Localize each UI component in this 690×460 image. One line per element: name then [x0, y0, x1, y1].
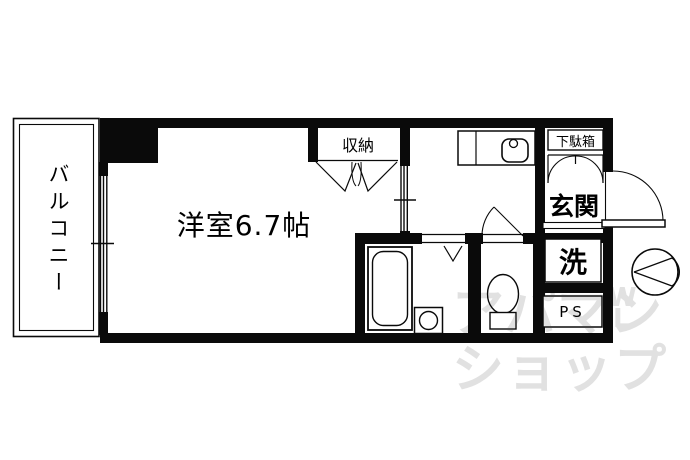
drain-pan-icon	[415, 308, 443, 334]
wall-top-left-block	[100, 118, 158, 163]
entrance-label: 玄関	[544, 189, 604, 221]
faucet-icon	[510, 140, 518, 148]
wall-bath-left	[355, 244, 365, 333]
wall-bath-top-mid	[465, 233, 483, 244]
wall-bottom	[100, 333, 613, 343]
compass-icon	[632, 249, 679, 295]
wall-right-upper	[603, 118, 613, 172]
wall-right-lower	[603, 220, 613, 343]
floor-plan: バルコニー 洋室6.7帖 収納 下駄箱 玄関 洗 PS アパマン ショップ W …	[0, 0, 690, 460]
wall-left-lower	[99, 312, 108, 335]
sliding-door-icon	[394, 166, 416, 231]
entrance-step	[543, 223, 605, 229]
shoe-cabinet-label: 下駄箱	[548, 130, 603, 150]
wall-left-upper	[99, 162, 108, 176]
main-room-label: 洋室6.7帖	[128, 206, 360, 242]
kitchen-counter	[458, 131, 535, 165]
closet-bifold-door-icon	[316, 161, 398, 192]
toilet-icon	[488, 275, 519, 330]
balcony-window-icon	[91, 176, 114, 312]
wall-laundry-ps	[535, 283, 613, 293]
wall-top	[100, 118, 613, 128]
closet-label: 収納	[316, 131, 400, 157]
pipe-space-label: PS	[543, 300, 602, 324]
entrance-door-icon	[602, 171, 665, 227]
bath-folding-door-icon	[444, 246, 462, 261]
bathtub-icon	[368, 247, 412, 330]
wall-room-right-upper	[400, 128, 410, 166]
wall-toilet-left	[468, 244, 481, 333]
toilet-door-swing-icon	[482, 207, 523, 236]
wall-bath-top-left	[355, 233, 422, 244]
laundry-label: 洗	[545, 243, 601, 279]
balcony-label: バルコニー	[38, 148, 78, 312]
